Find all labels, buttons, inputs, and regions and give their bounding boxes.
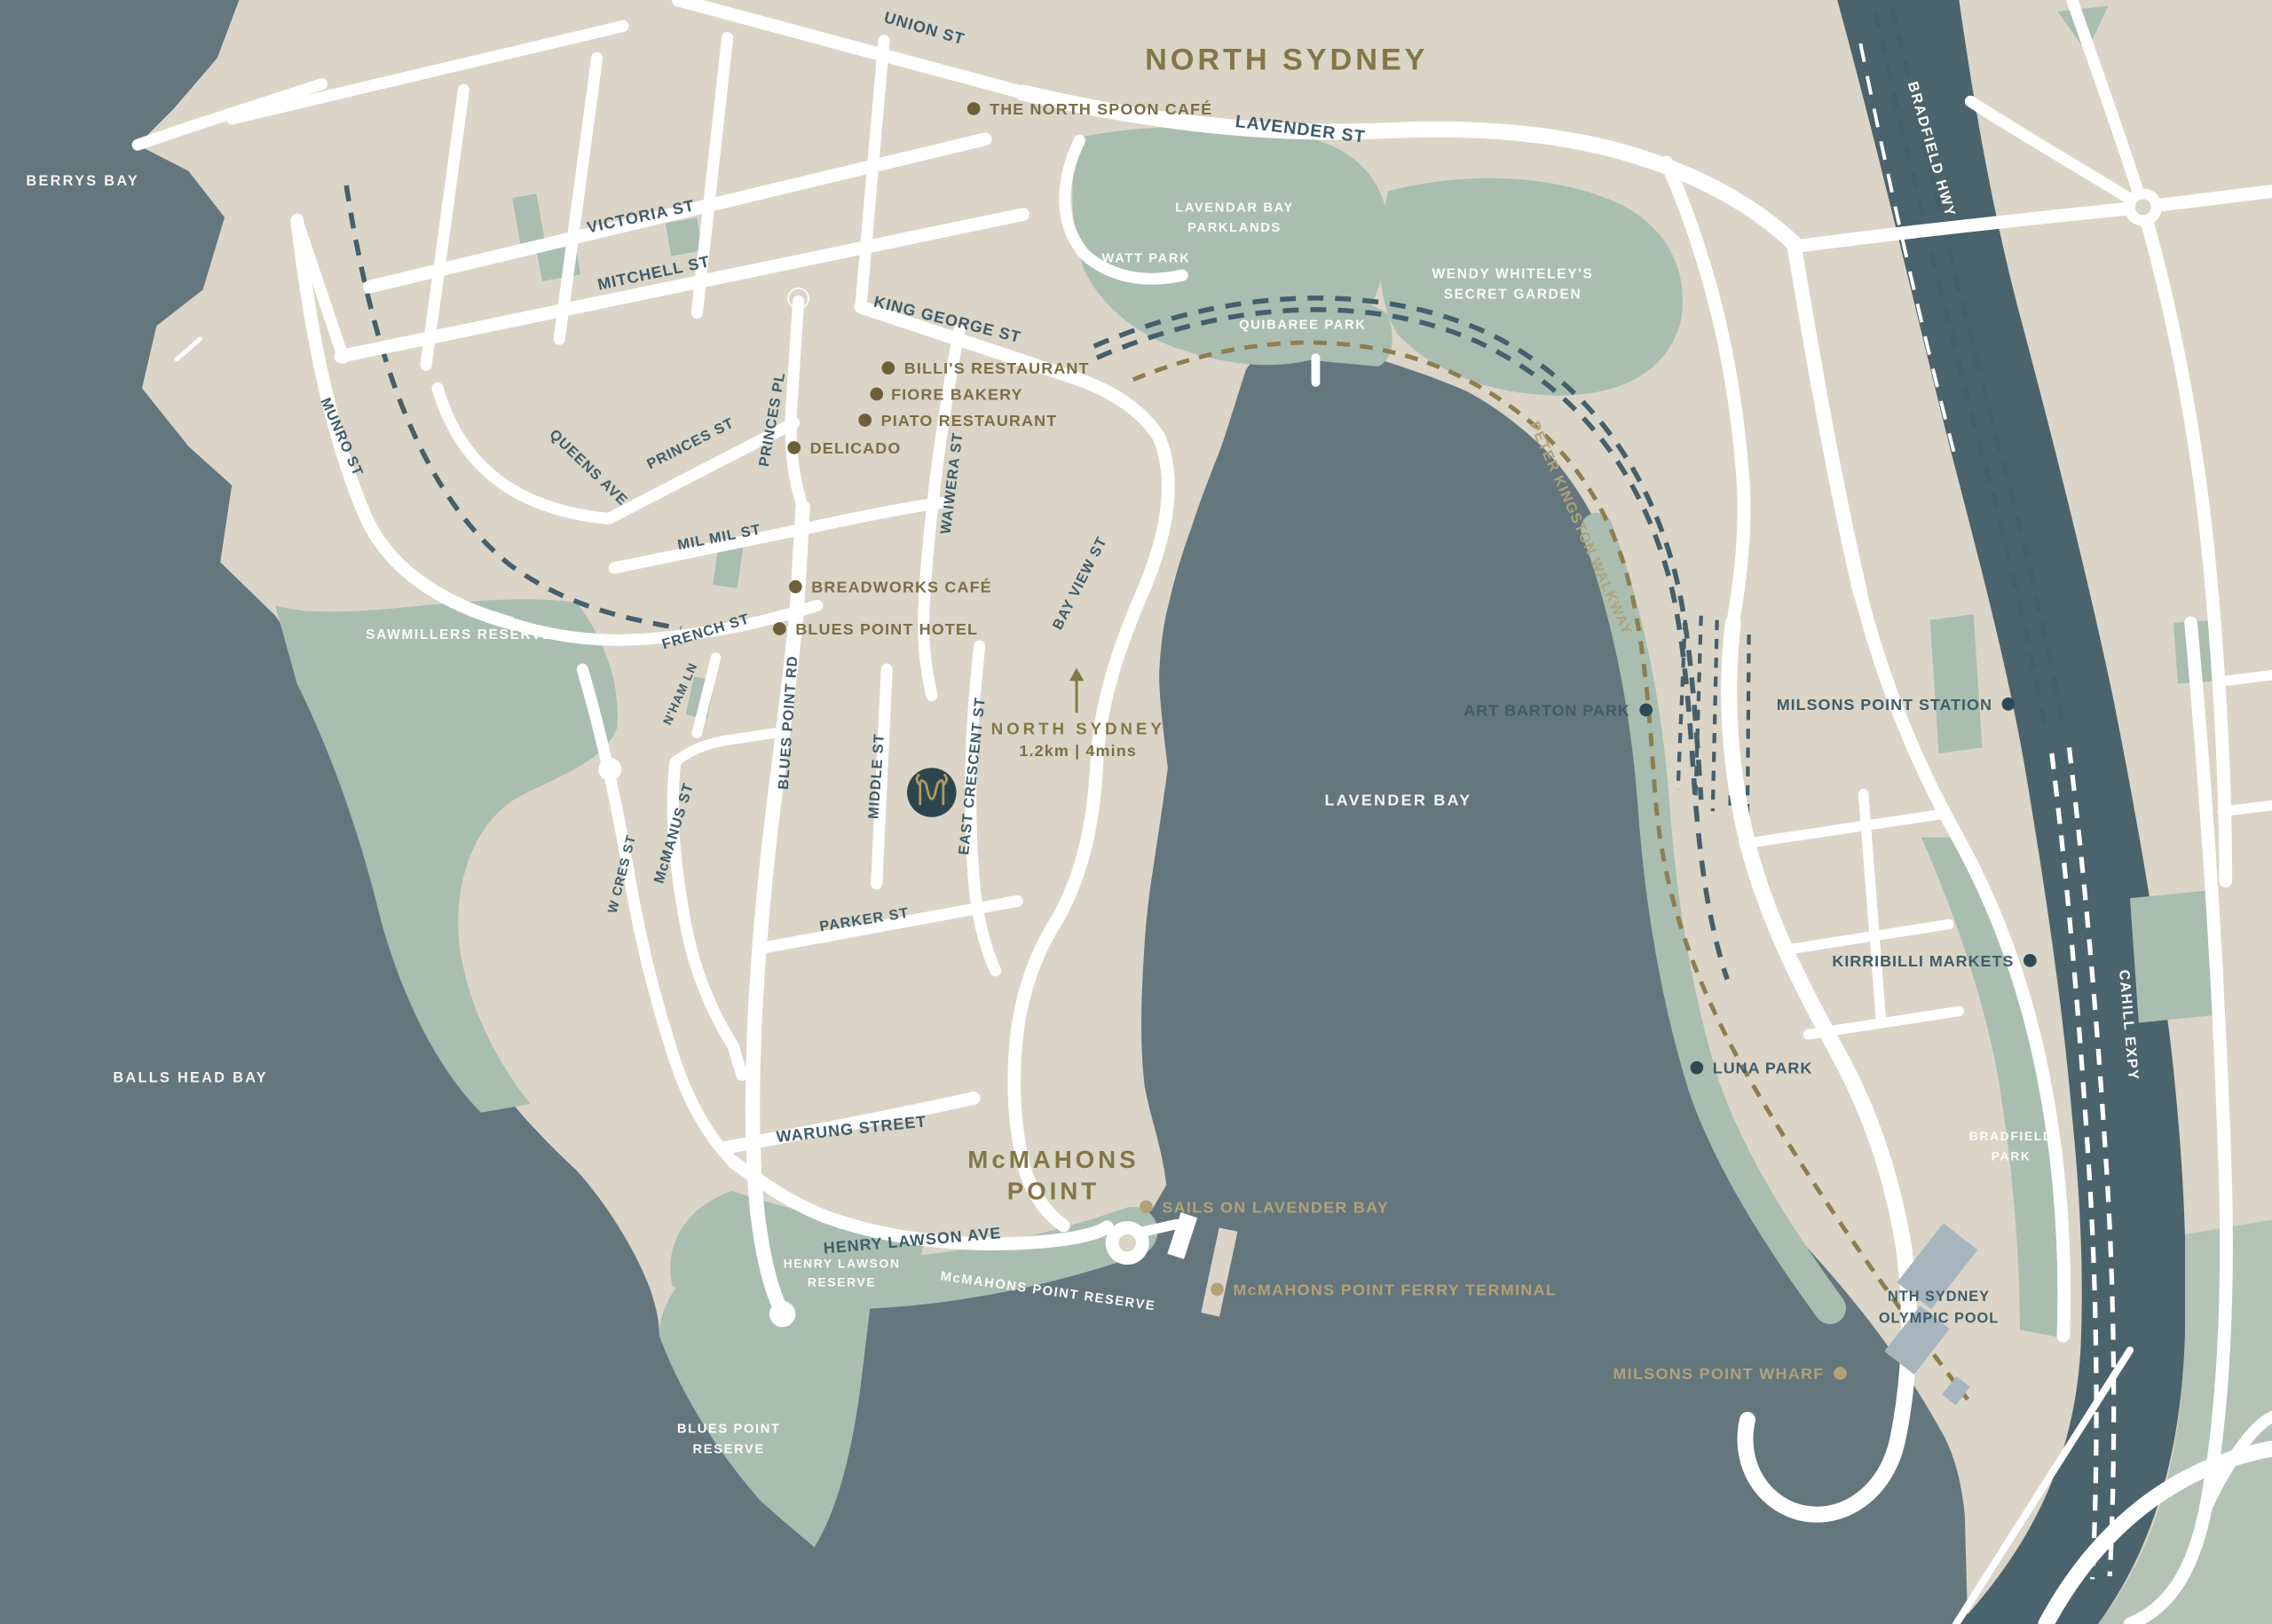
poi-label-luna-park: LUNA PARK	[1713, 1060, 1812, 1077]
label-north-sydney: NORTH SYDNEY	[1145, 43, 1428, 76]
distance-destination: NORTH SYDNEY	[991, 720, 1165, 738]
road-kirribilli-cross-2	[2222, 806, 2272, 812]
poi-dot-milsons-station	[2002, 698, 2016, 711]
poi-label-piato: PIATO RESTAURANT	[881, 412, 1058, 430]
poi-label-breadworks: BREADWORKS CAFÉ	[811, 578, 992, 596]
label-bradfield-park-1: BRADFIELD	[1969, 1129, 2054, 1143]
poi-dot-del icado	[787, 441, 801, 454]
poi-dot-north-spoon	[967, 102, 981, 115]
poi-label-delicado: DELICADO	[810, 439, 902, 457]
label-mcmahons-line1: McMAHONS	[967, 1146, 1139, 1173]
poi-label-blues-point-hotel: BLUES POINT HOTEL	[795, 620, 978, 638]
mcmahons-point-map: NORTH SYDNEY 1.2km | 4mins NORTH SYDNEY …	[0, 0, 2272, 1624]
poi-dot-kirribilli-markets	[2023, 954, 2037, 967]
label-berrys-bay: BERRYS BAY	[26, 173, 139, 189]
label-quibaree-park: QUIBAREE PARK	[1239, 319, 1366, 333]
poi-label-milsons-station: MILSONS POINT STATION	[1777, 696, 1992, 713]
label-bradfield-park-2: PARK	[1992, 1149, 2031, 1163]
road-kirribilli-cross-1	[2226, 675, 2272, 682]
poi-label-billis: BILLI'S RESTAURANT	[904, 359, 1090, 377]
logo-circle	[907, 768, 957, 817]
label-wendy-whiteleys-2: SECRET GARDEN	[1444, 287, 1582, 302]
label-henry-lawson-reserve-1: HENRY LAWSON	[784, 1256, 901, 1270]
poi-dot-billis	[881, 361, 895, 374]
poi-label-sails: SAILS ON LAVENDER BAY	[1162, 1198, 1389, 1216]
poi-dot-piato	[858, 414, 872, 427]
label-olympic-pool-2: OLYMPIC POOL	[1879, 1310, 1999, 1326]
roundabout-ne-center	[2135, 199, 2151, 215]
poi-dot-milsons-wharf	[1834, 1367, 1847, 1380]
henry-lawson-loop-center	[1118, 1234, 1136, 1252]
poi-label-kirribilli-markets: KIRRIBILLI MARKETS	[1832, 952, 2014, 970]
station-green-strip	[1930, 614, 1983, 753]
label-wendy-whiteleys-1: WENDY WHITELEY'S	[1432, 266, 1594, 281]
poi-label-north-spoon: THE NORTH SPOON CAFÉ	[990, 99, 1212, 118]
label-watt-park: WATT PARK	[1102, 251, 1191, 265]
poi-label-ferry-terminal: McMAHONS POINT FERRY TERMINAL	[1233, 1281, 1557, 1298]
road-ferry-access	[1145, 1224, 1177, 1231]
poi-dot-art-barton	[1639, 704, 1653, 717]
label-blues-point-reserve-1: BLUES POINT	[677, 1423, 781, 1437]
w-cres-junction	[598, 758, 621, 781]
label-lavendar-parklands-2: PARKLANDS	[1187, 221, 1282, 235]
distance-detail: 1.2km | 4mins	[1019, 742, 1137, 760]
poi-label-art-barton: ART BARTON PARK	[1463, 701, 1629, 719]
label-lavendar-parklands-1: LAVENDAR BAY	[1175, 201, 1294, 215]
label-lavender-bay: LAVENDER BAY	[1325, 792, 1472, 809]
poi-dot-fiore	[870, 388, 883, 401]
poi-label-milsons-wharf: MILSONS POINT WHARF	[1613, 1365, 1824, 1383]
label-mcmahons-line2: POINT	[1007, 1178, 1100, 1205]
label-sawmillers-reserve: SAWMILLERS RESERVE	[366, 627, 553, 643]
poi-dot-ferry-terminal	[1211, 1283, 1224, 1297]
block-green-3	[666, 217, 703, 256]
label-balls-head-bay: BALLS HEAD BAY	[113, 1069, 268, 1085]
label-olympic-pool-1: NTH SYDNEY	[1888, 1289, 1990, 1305]
poi-dot-breadworks	[789, 580, 802, 594]
poi-dot-blues-point-hotel	[773, 622, 786, 635]
poi-dot-sails	[1140, 1201, 1153, 1214]
blues-point-rd-end	[769, 1301, 795, 1327]
map-canvas: NORTH SYDNEY 1.2km | 4mins NORTH SYDNEY …	[0, 0, 2272, 1624]
development-logo	[907, 768, 957, 817]
label-blues-point-reserve-2: RESERVE	[693, 1442, 765, 1456]
poi-label-fiore: FIORE BAKERY	[891, 386, 1023, 404]
poi-dot-luna-park	[1690, 1061, 1703, 1075]
label-henry-lawson-reserve-2: RESERVE	[808, 1275, 876, 1289]
